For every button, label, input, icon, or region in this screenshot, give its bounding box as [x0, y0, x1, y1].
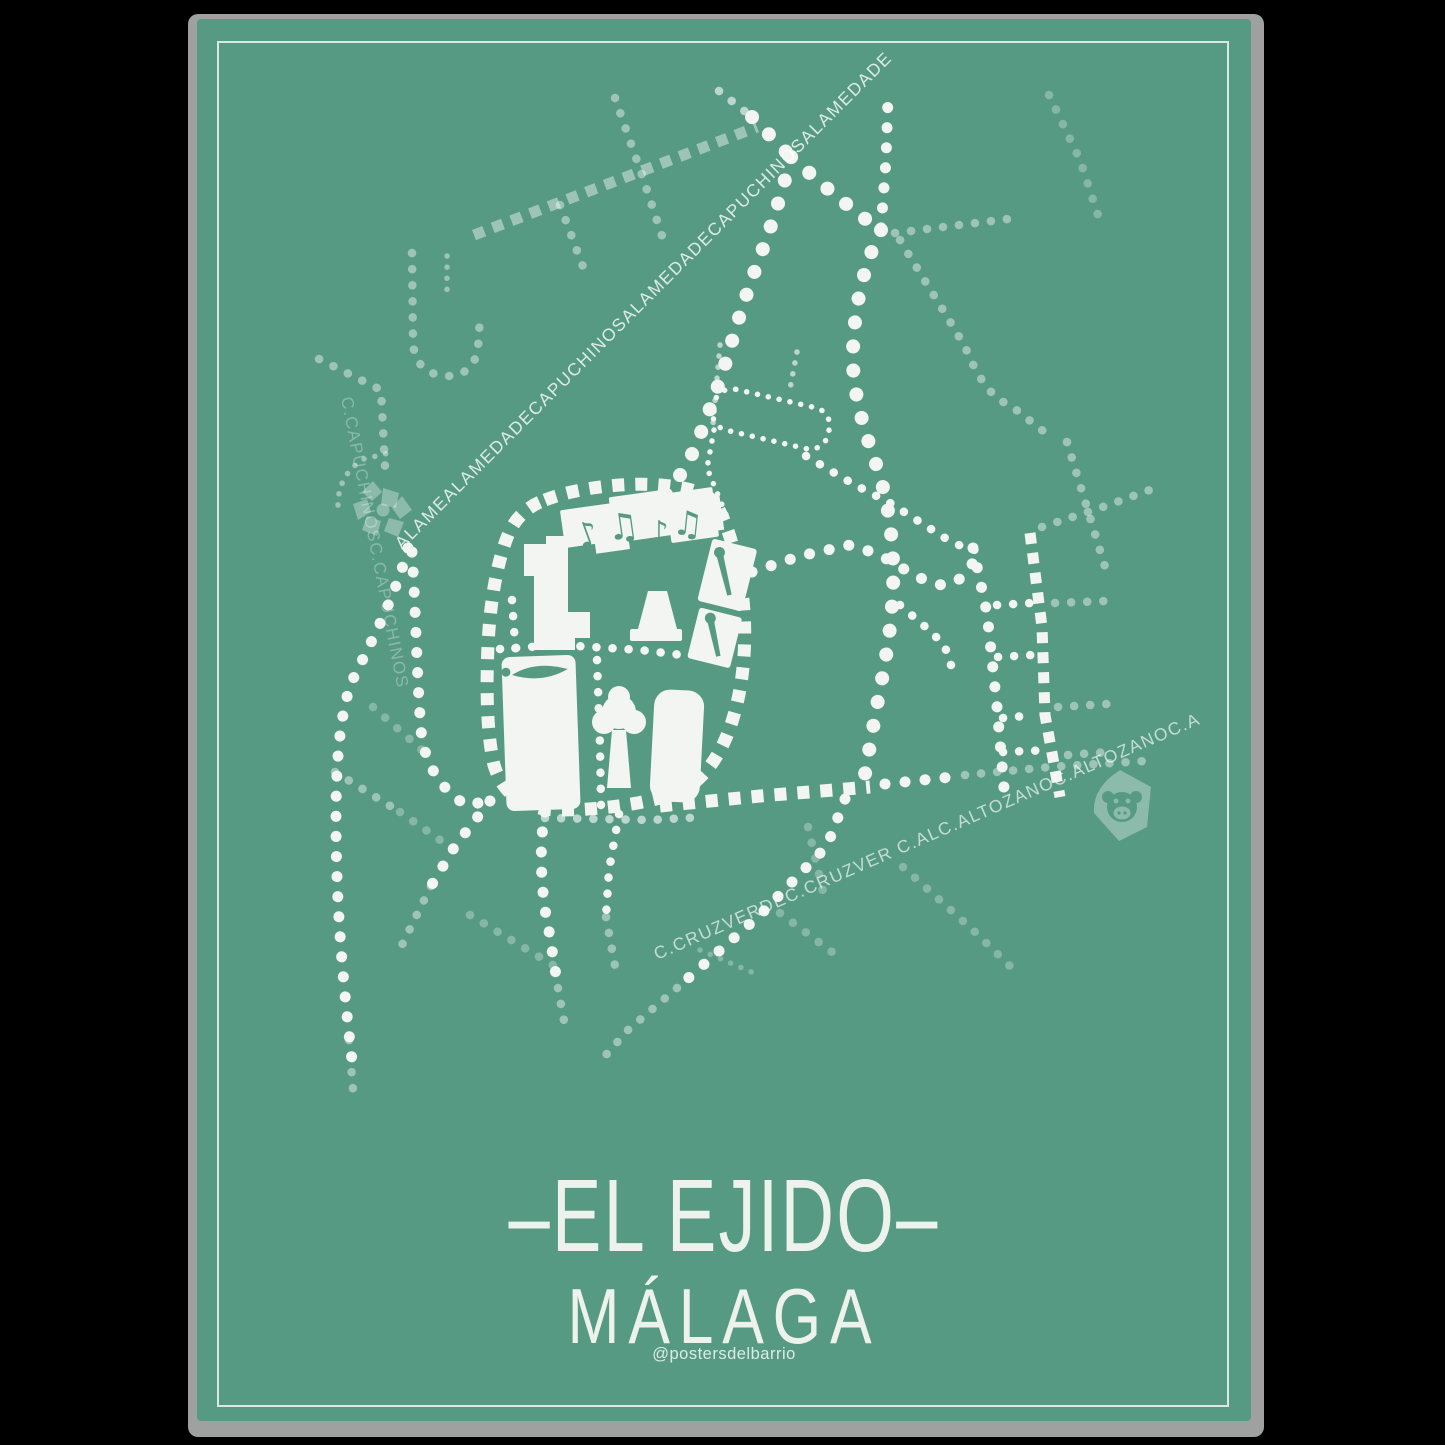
street-dotted	[545, 817, 705, 820]
street-dotted	[606, 814, 619, 917]
street-dotted	[780, 913, 840, 958]
street-dotted	[752, 545, 976, 585]
street-dotted	[500, 645, 690, 656]
svg-text:♪: ♪	[650, 515, 669, 550]
block-outline	[709, 385, 833, 452]
school-building	[501, 655, 581, 812]
street-dotted	[400, 886, 431, 949]
street-dotted	[615, 98, 665, 245]
street-dotted	[973, 548, 1005, 800]
street-dotted	[1003, 715, 1035, 718]
street-dotted	[560, 205, 585, 272]
poster: ♪ ♫ ♪ ♫	[188, 14, 1264, 1437]
tower-building	[524, 536, 590, 650]
street-dotted	[885, 777, 952, 784]
rounded-building	[649, 689, 705, 803]
street-dotted	[791, 157, 881, 230]
street-dotted	[1058, 704, 1107, 707]
street-dotted	[789, 352, 797, 394]
map-canvas: ♪ ♫ ♪ ♫	[197, 19, 1251, 1421]
street-dotted	[903, 867, 1017, 973]
street-dotted	[997, 603, 1032, 605]
street-dotted	[853, 230, 893, 790]
svg-text:♫: ♫	[604, 505, 642, 550]
street-dotted	[1049, 95, 1098, 215]
street-dotted	[895, 218, 1016, 233]
street-dotted	[1055, 601, 1105, 603]
poster-mockup-scene: { "poster": { "title": "–EL EJIDO–", "su…	[0, 0, 1445, 1445]
street-dotted	[1042, 487, 1158, 527]
monument	[638, 591, 677, 629]
street-label-alameda: ALAMEALAMEDADECAPUCHINOSALAMEDADECAPUCHI…	[391, 48, 896, 553]
street-dotted	[900, 240, 1052, 438]
street-dotted	[412, 552, 488, 806]
monkey-logo-icon	[1094, 770, 1151, 841]
street-dotted	[900, 605, 952, 668]
street-dotted	[558, 988, 566, 1032]
music-building: ♪ ♫ ♪ ♫	[559, 482, 726, 564]
street-dotted	[606, 917, 615, 966]
monument-base	[630, 629, 682, 641]
street-labels-layer: ALAMEALAMEDADECAPUCHINOSALAMEDADECAPUCHI…	[337, 48, 1203, 964]
street-dotted	[1030, 533, 1060, 797]
street-dotted	[881, 98, 888, 228]
street-dotted	[349, 1040, 353, 1090]
street-dotted	[335, 772, 400, 812]
street-dotted	[605, 988, 677, 1056]
street-dotted	[412, 253, 480, 376]
street-dotted	[470, 915, 566, 973]
svg-text:♫: ♫	[671, 503, 705, 546]
street-dotted	[998, 655, 1033, 657]
poster-face: ♪ ♫ ♪ ♫	[197, 19, 1251, 1421]
street-dotted	[1003, 750, 1050, 752]
street-dotted	[541, 812, 558, 988]
